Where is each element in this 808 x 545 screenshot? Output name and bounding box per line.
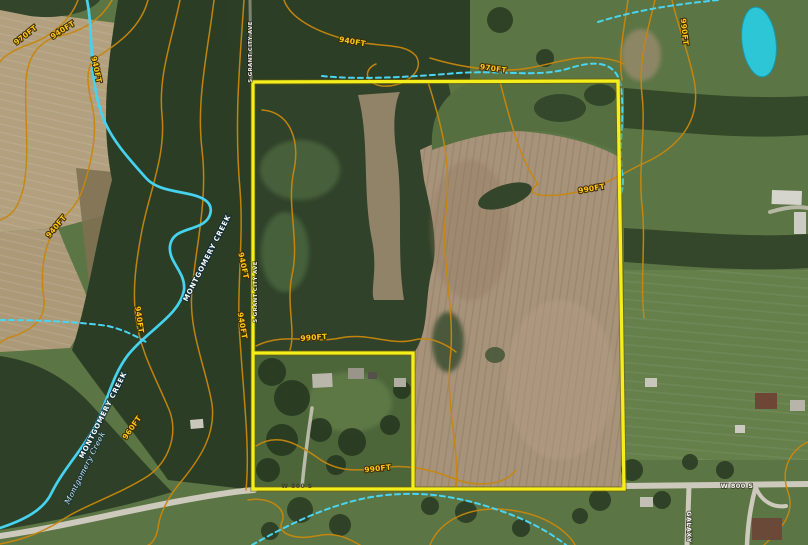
contour-elevation-label-11: 990FT [300, 332, 328, 343]
shed-topright [794, 212, 806, 234]
house-bottom-1 [640, 497, 653, 507]
road-name-label-0: W 800 S [721, 482, 754, 490]
pasture-right-stripes [624, 270, 808, 460]
house-right-3 [645, 378, 657, 387]
house-right-1 [755, 393, 777, 409]
shed-right [735, 425, 745, 433]
map-canvas[interactable]: 970FT940FT940FT940FT970FT990FT990FT940FT… [0, 0, 808, 545]
grass-gap-1 [260, 140, 340, 200]
house-bottomright [752, 518, 782, 540]
field-mottle-2 [505, 300, 615, 460]
road-w800s [624, 484, 808, 486]
road-name-label-2: GALAXY [685, 511, 693, 543]
map-viewport[interactable]: 970FT940FT940FT940FT970FT990FT990FT940FT… [0, 0, 808, 545]
shed-homestead [368, 372, 377, 379]
trees-ne-2 [584, 84, 616, 106]
house-right-2 [790, 400, 805, 411]
trees-ne-1 [534, 94, 586, 122]
barn-topright [772, 190, 802, 205]
grass-gap-2 [261, 212, 309, 292]
road-name-label-3: S GRANT CITY AVE [248, 21, 254, 83]
road-name-label-1: W 800 S [281, 483, 312, 490]
outbuilding-homestead [394, 378, 406, 387]
field-mottle-1 [430, 160, 510, 300]
house-homestead-2 [348, 368, 364, 379]
house-left [190, 419, 204, 429]
house-homestead-1 [312, 373, 333, 388]
road-name-label-4: S GRANT CITY AVE [253, 261, 259, 323]
field-tree-dot [485, 347, 505, 363]
